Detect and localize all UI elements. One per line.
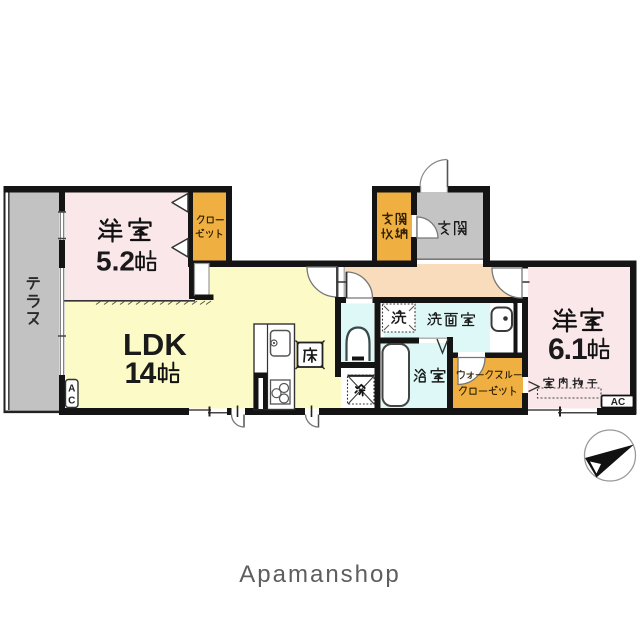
svg-text:6.1: 6.1 (548, 333, 587, 366)
svg-text:14: 14 (125, 357, 157, 390)
svg-text:Apamanshop: Apamanshop (239, 561, 400, 588)
svg-text:C: C (68, 396, 75, 407)
svg-text:A: A (68, 384, 75, 395)
svg-text:5.2: 5.2 (96, 246, 135, 277)
svg-text:AC: AC (611, 397, 625, 408)
